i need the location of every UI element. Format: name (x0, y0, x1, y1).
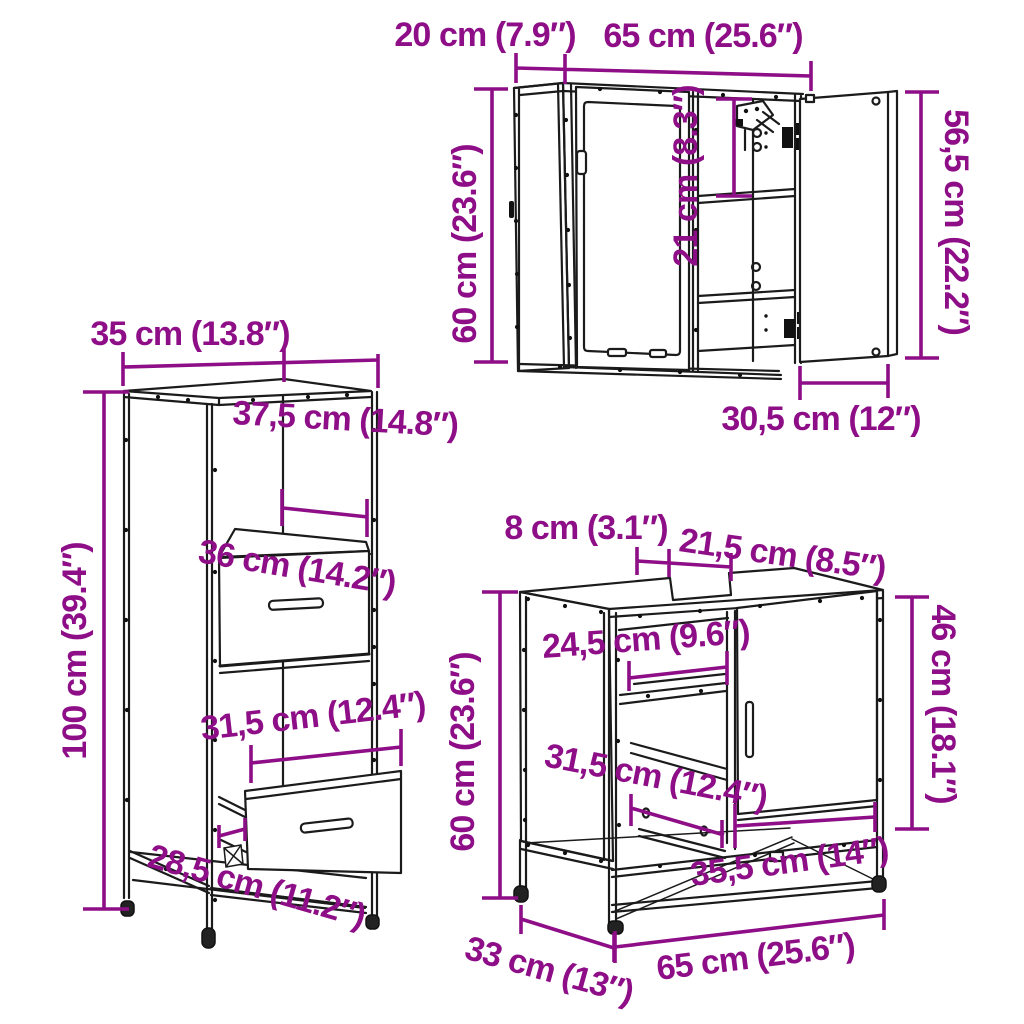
svg-text:20 cm (7.9″): 20 cm (7.9″) (394, 16, 575, 54)
svg-text:56,5 cm (22.2″): 56,5 cm (22.2″) (937, 109, 975, 335)
svg-text:46 cm (18.1″): 46 cm (18.1″) (924, 604, 962, 803)
svg-text:21 cm (8.3″): 21 cm (8.3″) (667, 85, 705, 266)
svg-text:60 cm (23.6″): 60 cm (23.6″) (446, 144, 484, 343)
svg-text:35 cm (13.8″): 35 cm (13.8″) (90, 315, 289, 353)
svg-text:65 cm (25.6″): 65 cm (25.6″) (603, 17, 802, 55)
svg-text:60 cm (23.6″): 60 cm (23.6″) (444, 652, 482, 851)
svg-text:100 cm (39.4″): 100 cm (39.4″) (56, 542, 94, 759)
svg-text:30,5 cm (12″): 30,5 cm (12″) (721, 400, 920, 438)
svg-text:8 cm (3.1″): 8 cm (3.1″) (504, 509, 667, 547)
